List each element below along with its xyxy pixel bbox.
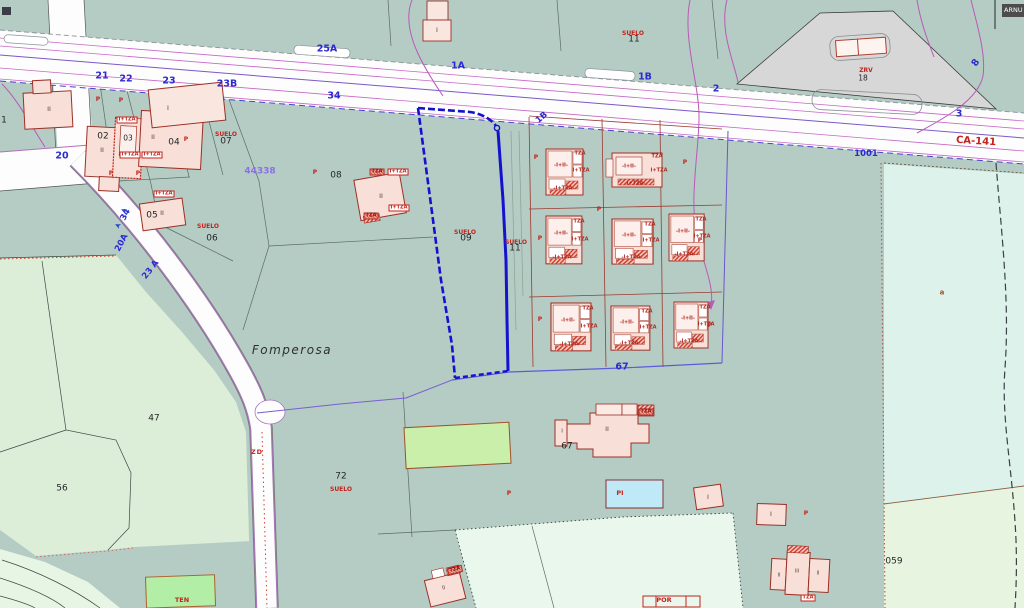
floors-label: II: [47, 106, 51, 113]
suelo-label: SUELO: [454, 230, 476, 236]
unit-bottom-tag: -I+TZA-: [624, 182, 645, 187]
unit-bottom-tag: -I+TZA-: [674, 253, 695, 258]
parcel-number: 1: [1, 117, 7, 126]
parcel-number: 05: [146, 212, 157, 221]
itza-tag: I+TZA: [389, 205, 410, 212]
unit-top-tag: TZA: [700, 306, 711, 311]
floors-label: I: [436, 27, 438, 34]
unit-main-tag: -I+II-: [620, 321, 634, 326]
floors-label: III: [795, 570, 799, 575]
road-label: 2: [713, 84, 720, 94]
itza-tag: I+TZA: [388, 169, 409, 176]
unit-side-tag: I+TZA: [573, 169, 590, 174]
zone-label-por: POR: [656, 597, 671, 604]
road-label: 21: [95, 71, 108, 81]
unit-side-tag: I+TZA: [643, 239, 660, 244]
suelo-label: SUELO: [505, 240, 527, 246]
unit-side-tag: I+TZA: [694, 235, 711, 240]
map-geometry: [0, 0, 1024, 608]
cadastral-map-canvas[interactable]: 25A 21 22 23 23B 34 1A 1B 2 8 3 1001 20 …: [0, 0, 1024, 608]
road-label: 1A: [451, 61, 465, 71]
tza-tag: TZA: [364, 213, 379, 220]
suelo-label: SUELO: [215, 132, 237, 138]
unit-main-tag: -I+II-: [554, 232, 568, 237]
unit-main-tag: -I+II-: [622, 165, 636, 170]
parcel-number: 07: [220, 138, 231, 147]
edge-mark: [2, 7, 11, 15]
unit-bottom-tag: -I+TZA-: [621, 256, 642, 261]
p-marker: P: [507, 491, 511, 497]
unit-top-tag: TZA: [652, 155, 663, 160]
zone-label-zd: ZD: [251, 449, 263, 456]
tza-tag: TZA: [801, 595, 816, 602]
zone-label-zrv: ZRV: [859, 68, 873, 74]
p-marker: P: [538, 317, 542, 323]
unit-bottom-tag: -I+TZA-: [619, 342, 640, 347]
unit-main-tag: -I+II-: [554, 164, 568, 169]
p-marker: P: [804, 511, 808, 517]
place-name-label: Fomperosa: [252, 344, 332, 356]
parcel-number: 08: [330, 172, 341, 181]
unit-main-tag: -I+II-: [561, 319, 575, 324]
itza-tag: I+TZA: [117, 117, 138, 124]
road-label: 23B: [217, 79, 237, 89]
unit-bottom-tag: -I+TZA-: [552, 256, 573, 261]
unit-main-tag: -I+II-: [681, 317, 695, 322]
itza-tag: I+TZA: [154, 191, 175, 198]
corner-tag-badge[interactable]: ARNU: [1002, 4, 1024, 17]
road-label: 1001: [854, 150, 878, 159]
parcel-number: 02: [97, 133, 108, 142]
unit-bottom-tag: -I+TZA-: [679, 340, 700, 345]
p-marker: P: [184, 137, 188, 143]
unit-side-tag: I+TZA: [651, 169, 668, 174]
road-label: 3: [956, 109, 963, 119]
parcel-number: 059: [885, 558, 902, 567]
zone-label-ten: TEN: [175, 597, 189, 604]
unit-top-tag: TZA: [645, 223, 656, 228]
p-marker: P: [683, 160, 687, 166]
unit-side-tag: I+TZA: [581, 325, 598, 330]
unit-top-tag: TZA: [696, 218, 707, 223]
parcel-number: 18: [858, 74, 868, 82]
parcel-number: 47: [148, 415, 159, 424]
parcel-number: 67: [561, 443, 572, 452]
floors-label: II: [379, 193, 383, 200]
floors-label: II: [817, 572, 820, 577]
unit-side-tag: I+TZA: [572, 238, 589, 243]
unit-main-tag: -I+II-: [622, 234, 636, 239]
zd-zone: [404, 422, 511, 468]
floors-label: I: [561, 429, 563, 435]
floors-label: I: [167, 105, 169, 112]
subparcel-label: a: [940, 290, 945, 297]
p-marker: P: [538, 236, 542, 242]
p-marker: P: [136, 171, 140, 177]
pi-zone: [606, 480, 663, 508]
unit-bottom-tag: -I+TZA-: [553, 187, 574, 192]
unit-top-tag: TZA: [574, 220, 585, 225]
suelo-label: SUELO: [622, 31, 644, 37]
tza-tag: TZA: [370, 169, 385, 176]
p-marker: P: [534, 155, 538, 161]
unit-bottom-tag: -I+TZA-: [559, 343, 580, 348]
floors-label: I: [707, 494, 709, 501]
p-marker: P: [96, 97, 100, 103]
floors-label: II: [778, 574, 781, 579]
unit-main-tag: -I+II-: [676, 230, 690, 235]
road-label: 22: [119, 74, 132, 84]
boundary-label: 67: [615, 362, 628, 372]
unit-side-tag: I+TZA: [698, 323, 715, 328]
parcel-number: 72: [335, 473, 346, 482]
itza-tag: I+TZA: [142, 152, 163, 159]
floors-label: II: [605, 426, 609, 433]
zone-label-pi: PI: [616, 490, 623, 497]
floors-label: I: [770, 511, 772, 518]
unit-top-tag: TZA: [575, 152, 586, 157]
p-marker: P: [119, 98, 123, 104]
parcel-number: 56: [56, 485, 67, 494]
p-marker: P: [597, 207, 601, 213]
road-label: 25A: [317, 44, 338, 54]
road-label: 23: [162, 76, 175, 86]
suelo-label: SUELO: [330, 487, 352, 493]
parcel-number: 06: [206, 235, 217, 244]
floors-label: II: [100, 147, 104, 154]
unit-top-tag: TZA: [583, 307, 594, 312]
tza-tag: TZA: [639, 409, 654, 416]
p-marker: P: [109, 171, 113, 177]
floors-label: II: [151, 134, 155, 141]
unit-side-tag: I+TZA: [640, 326, 657, 331]
path-track: [511, 131, 523, 330]
suelo-label: SUELO: [197, 224, 219, 230]
parcel-number: 03: [123, 134, 133, 142]
floors-label: II: [160, 210, 164, 217]
road-label: 34: [327, 91, 340, 101]
p-marker: P: [313, 170, 317, 176]
road-label: 20: [55, 151, 68, 161]
road-label: 1B: [638, 72, 652, 82]
reference-code-label: 44338: [244, 168, 275, 177]
parcel-number: 04: [168, 139, 179, 148]
unit-top-tag: TZA: [642, 310, 653, 315]
itza-tag: I+TZA: [120, 152, 141, 159]
